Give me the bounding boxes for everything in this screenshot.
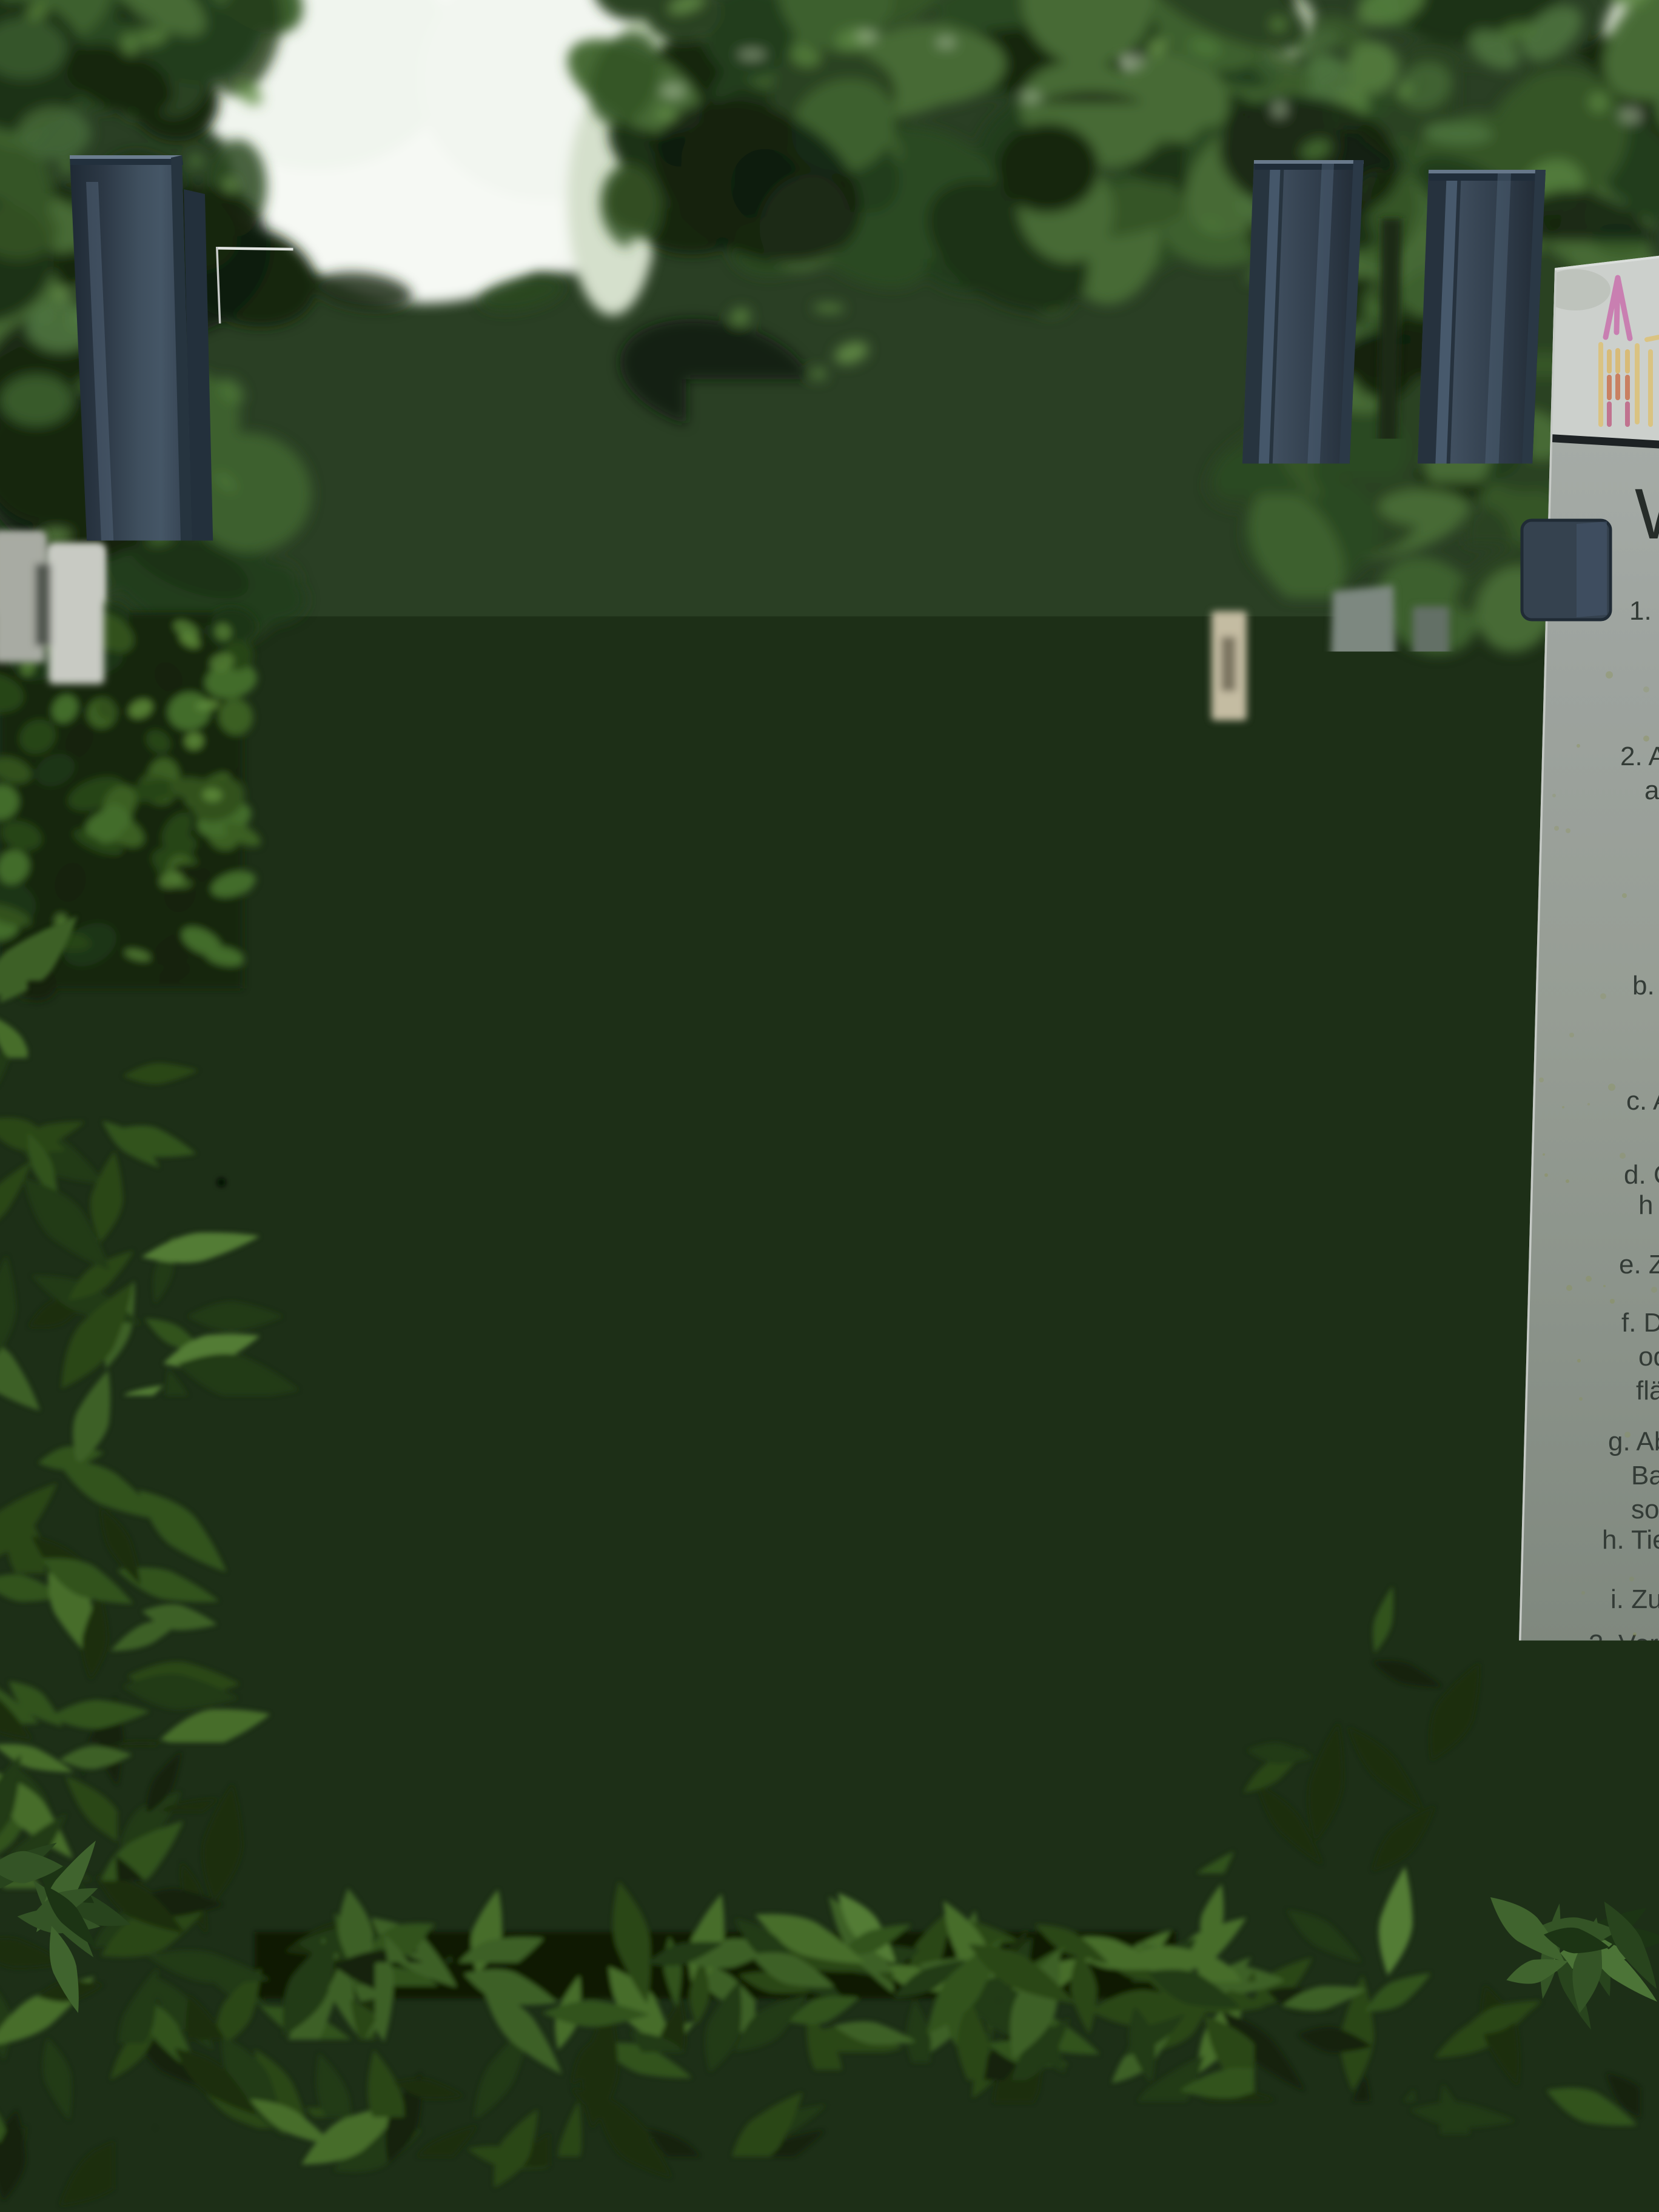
svg-text:Trauerhalle: Trauerhalle — [401, 1605, 539, 1640]
svg-text:43: 43 — [777, 865, 796, 883]
svg-text:4. Die Grabs: 4. Die Grabs — [1553, 1718, 1659, 1748]
svg-text:D: D — [874, 1339, 886, 1358]
svg-text:53: 53 — [584, 713, 602, 731]
svg-text:c. A: c. A — [1626, 1086, 1659, 1116]
svg-text:E: E — [469, 974, 477, 987]
svg-text:6: 6 — [880, 1175, 889, 1193]
svg-text:42: 42 — [624, 840, 642, 858]
svg-text:37: 37 — [670, 897, 688, 915]
svg-text:Jüdischer Friedhof: Jüdischer Friedhof — [408, 1767, 641, 1802]
svg-text:9: 9 — [787, 930, 794, 943]
svg-text:e. Zu: e. Zu — [1619, 1250, 1659, 1279]
svg-text:3. Vorsätzlic: 3. Vorsätzlic — [1589, 1629, 1659, 1659]
svg-text:34: 34 — [656, 974, 668, 986]
svg-text:24: 24 — [789, 1340, 806, 1358]
svg-text:od: od — [1638, 1342, 1659, 1372]
svg-text:29: 29 — [599, 1195, 612, 1208]
svg-text:A: A — [350, 1605, 374, 1640]
svg-text:a: a — [1644, 776, 1659, 805]
svg-text:38: 38 — [548, 1054, 565, 1073]
svg-text:7: 7 — [880, 1081, 889, 1099]
svg-text:62: 62 — [777, 580, 796, 598]
svg-text:11: 11 — [1025, 1260, 1038, 1273]
svg-text:46: 46 — [453, 769, 471, 788]
svg-text:31: 31 — [603, 1034, 617, 1048]
svg-text:W: W — [1635, 474, 1659, 554]
svg-text:50: 50 — [514, 726, 531, 745]
svg-text:44: 44 — [538, 907, 556, 925]
svg-text:5. Für die Au: 5. Für die Au — [1550, 1772, 1659, 1802]
svg-text:g. Abr: g. Abr — [1608, 1427, 1659, 1456]
svg-text:h: h — [1638, 1190, 1653, 1220]
svg-text:10: 10 — [1025, 960, 1038, 973]
svg-text:f. De: f. De — [1621, 1308, 1659, 1338]
svg-text:Ehrenfriedhöfe: Ehrenfriedhöfe — [411, 1820, 606, 1855]
svg-text:Wormser Landstraße: Wormser Landstraße — [1048, 950, 1090, 1299]
svg-text:Verwaltung: Verwaltung — [404, 1664, 543, 1700]
svg-text:39: 39 — [558, 1014, 577, 1033]
svg-text:57: 57 — [663, 613, 682, 632]
svg-text:58: 58 — [708, 595, 727, 614]
svg-text:d. C: d. C — [1624, 1160, 1659, 1190]
svg-text:Ehrenfriedhöfe: Ehrenfriedhöfe — [906, 1653, 1031, 1681]
svg-text:Ausgang: Ausgang — [906, 1683, 982, 1711]
svg-text:Jüdischer Friedhof: Jüdischer Friedhof — [923, 1763, 1074, 1792]
svg-text:13: 13 — [783, 985, 801, 1003]
svg-text:16: 16 — [783, 1259, 801, 1278]
svg-text:15: 15 — [783, 1175, 801, 1193]
svg-text:54: 54 — [579, 633, 597, 651]
svg-text:33: 33 — [656, 996, 668, 1008]
svg-text:64: 64 — [890, 806, 908, 825]
svg-text:sorg: sorg — [1631, 1495, 1659, 1524]
svg-text:47: 47 — [409, 749, 426, 767]
svg-text:40: 40 — [586, 962, 605, 980]
svg-text:8: 8 — [880, 985, 889, 1003]
svg-text:i. Zu sp: i. Zu sp — [1610, 1584, 1659, 1614]
svg-text:1: 1 — [968, 991, 977, 1009]
svg-text:3: 3 — [973, 1176, 982, 1194]
svg-text:21: 21 — [701, 1198, 717, 1214]
svg-text:63: 63 — [915, 871, 934, 890]
svg-text:flä: flä — [1636, 1376, 1659, 1406]
svg-text:51: 51 — [482, 659, 500, 677]
svg-text:5: 5 — [880, 1259, 889, 1277]
svg-text:B: B — [529, 1216, 540, 1235]
svg-text:35: 35 — [647, 951, 660, 965]
svg-text:Hochkreuz: Hochkreuz — [406, 1716, 543, 1751]
svg-text:55: 55 — [680, 768, 699, 786]
svg-text:Bau: Bau — [1631, 1461, 1659, 1490]
svg-text:28: 28 — [613, 1227, 628, 1242]
svg-text:Genehmig: Genehmig — [1578, 1806, 1659, 1836]
svg-text:56: 56 — [681, 714, 699, 732]
svg-text:9: 9 — [852, 871, 860, 890]
svg-text:1.: 1. — [1629, 596, 1652, 626]
svg-text:2. A: 2. A — [1620, 742, 1659, 771]
svg-text:23: 23 — [745, 1390, 759, 1405]
svg-text:Verwaltung: Verwaltung — [906, 1621, 1016, 1650]
svg-text:9: 9 — [900, 930, 907, 943]
svg-text:E '14-'18: E '14-'18 — [566, 1166, 617, 1181]
svg-text:36: 36 — [627, 982, 640, 995]
svg-text:25: 25 — [733, 1340, 751, 1358]
svg-text:48: 48 — [429, 703, 446, 721]
svg-text:können a: können a — [1612, 1663, 1659, 1693]
svg-text:20: 20 — [655, 1168, 672, 1185]
svg-text:26: 26 — [681, 1339, 699, 1358]
svg-text:61: 61 — [777, 652, 796, 671]
svg-text:4: 4 — [973, 1259, 982, 1277]
svg-text:45: 45 — [506, 788, 524, 806]
svg-text:49: 49 — [470, 717, 488, 736]
svg-text:Friedhof Speyer: Friedhof Speyer — [514, 293, 1163, 425]
svg-text:22: 22 — [690, 1261, 706, 1278]
svg-text:66: 66 — [884, 645, 902, 663]
svg-text:Alter Postweg: Alter Postweg — [634, 1422, 857, 1466]
svg-text:E '14-'18: E '14-'18 — [566, 1094, 617, 1110]
svg-text:60: 60 — [783, 714, 802, 732]
svg-text:Trauerhalle: Trauerhalle — [906, 1590, 1014, 1618]
svg-text:27: 27 — [640, 1275, 654, 1290]
svg-text:E '39-'45: E '39-'45 — [469, 867, 520, 882]
svg-text:b.: b. — [1632, 971, 1655, 1000]
svg-text:59: 59 — [782, 795, 800, 813]
svg-text:65: 65 — [890, 725, 908, 743]
svg-text:67: 67 — [748, 521, 764, 538]
svg-text:14: 14 — [783, 1081, 801, 1099]
svg-text:2: 2 — [973, 1080, 982, 1098]
svg-text:32: 32 — [632, 1034, 645, 1048]
svg-text:18: 18 — [700, 1078, 718, 1096]
svg-text:19: 19 — [651, 1099, 667, 1116]
svg-text:B: B — [357, 1664, 380, 1700]
svg-text:17: 17 — [701, 991, 719, 1009]
svg-text:h. Tiere: h. Tiere — [1602, 1525, 1659, 1555]
svg-text:52: 52 — [584, 765, 603, 783]
svg-text:A: A — [491, 1136, 501, 1155]
svg-text:41: 41 — [606, 906, 623, 924]
svg-text:30: 30 — [600, 1067, 614, 1081]
svg-text:12: 12 — [956, 1312, 970, 1325]
